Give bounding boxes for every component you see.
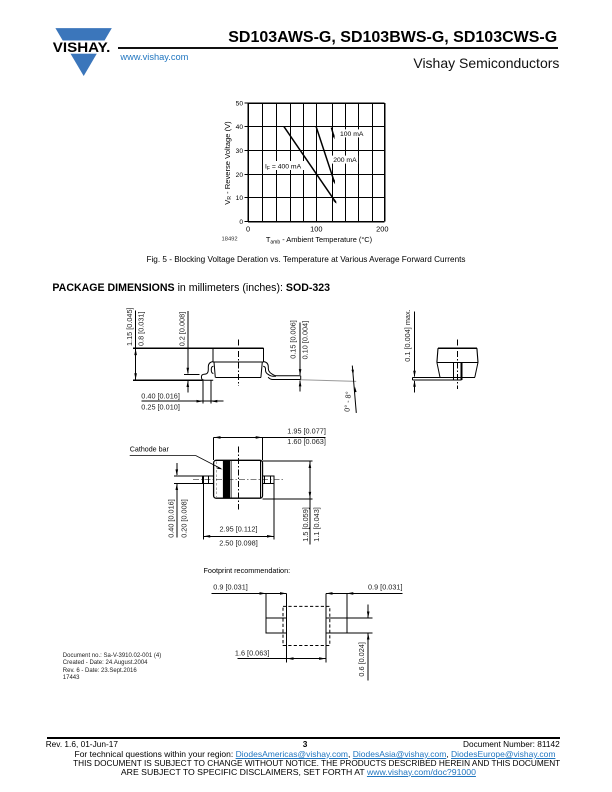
svg-text:0.2 [0.008]: 0.2 [0.008]	[178, 312, 187, 347]
svg-text:2.50 [0.098]: 2.50 [0.098]	[219, 538, 258, 547]
svg-text:0.10 [0.004]: 0.10 [0.004]	[301, 321, 310, 360]
svg-text:Cathode bar: Cathode bar	[130, 445, 170, 453]
svg-text:0.20 [0.008]: 0.20 [0.008]	[179, 499, 188, 538]
svg-text:40: 40	[236, 124, 244, 131]
svg-text:1.60 [0.063]: 1.60 [0.063]	[287, 437, 326, 446]
svg-text:1.95 [0.077]: 1.95 [0.077]	[287, 426, 326, 435]
svg-text:0: 0	[246, 225, 250, 234]
svg-text:0.25 [0.010]: 0.25 [0.010]	[141, 403, 180, 412]
svg-text:200: 200	[376, 225, 388, 234]
svg-text:0.15 [0.006]: 0.15 [0.006]	[288, 320, 297, 359]
svg-text:100: 100	[310, 225, 322, 234]
svg-text:100 mA: 100 mA	[340, 131, 364, 138]
svg-text:0.9 [0.031]: 0.9 [0.031]	[213, 582, 248, 591]
svg-text:Tamb - Ambient Temperature (°C: Tamb - Ambient Temperature (°C)	[266, 235, 372, 245]
svg-text:0.1 [0.004] max.: 0.1 [0.004] max.	[403, 309, 412, 361]
svg-text:2.95 [0.112]: 2.95 [0.112]	[219, 525, 257, 534]
svg-text:0: 0	[239, 219, 243, 226]
svg-text:1.15 [0.045]: 1.15 [0.045]	[125, 307, 134, 346]
svg-text:0° - 8°: 0° - 8°	[342, 391, 352, 412]
svg-text:0.8 [0.031]: 0.8 [0.031]	[137, 312, 146, 347]
svg-text:1.1 [0.043]: 1.1 [0.043]	[312, 507, 321, 542]
svg-text:10: 10	[236, 195, 244, 202]
svg-text:50: 50	[236, 100, 244, 107]
svg-text:VR - Reverse Voltage (V): VR - Reverse Voltage (V)	[223, 121, 233, 205]
svg-text:0.6 [0.024]: 0.6 [0.024]	[357, 642, 366, 677]
svg-text:1.6 [0.063]: 1.6 [0.063]	[235, 649, 270, 658]
svg-text:30: 30	[236, 148, 244, 155]
svg-text:0.40 [0.016]: 0.40 [0.016]	[166, 499, 175, 538]
svg-text:1.5 [0.059]: 1.5 [0.059]	[301, 507, 310, 542]
svg-text:IF = 400 mA: IF = 400 mA	[265, 164, 302, 172]
svg-text:18492: 18492	[222, 237, 238, 243]
svg-text:0.40 [0.016]: 0.40 [0.016]	[141, 392, 180, 401]
svg-text:20: 20	[236, 172, 244, 179]
svg-text:0.9 [0.031]: 0.9 [0.031]	[368, 582, 403, 591]
svg-text:200 mA: 200 mA	[333, 157, 357, 164]
